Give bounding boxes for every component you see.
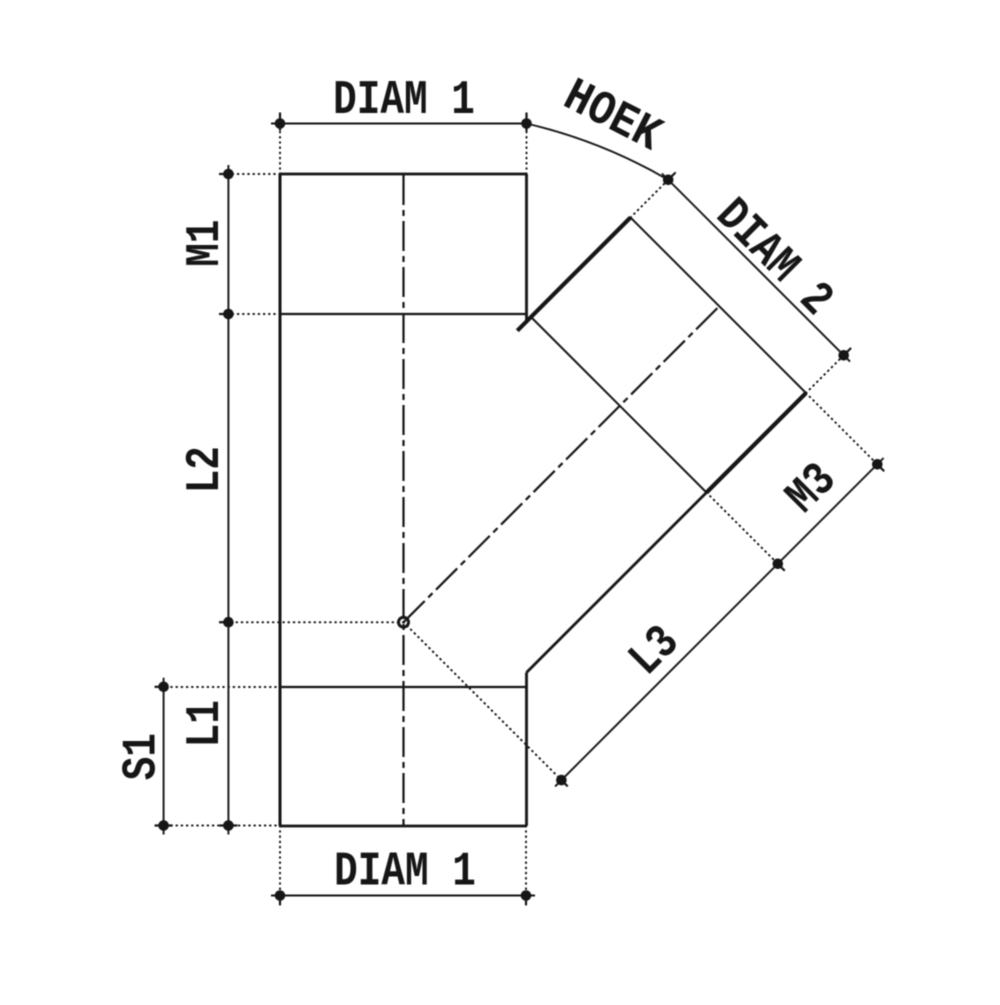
svg-text:DIAM 1: DIAM 1 bbox=[334, 845, 476, 900]
svg-text:DIAM 1: DIAM 1 bbox=[333, 74, 475, 129]
svg-text:S1: S1 bbox=[115, 733, 170, 780]
svg-text:L1: L1 bbox=[179, 700, 234, 747]
svg-text:L2: L2 bbox=[179, 446, 234, 493]
svg-text:M1: M1 bbox=[179, 220, 234, 267]
